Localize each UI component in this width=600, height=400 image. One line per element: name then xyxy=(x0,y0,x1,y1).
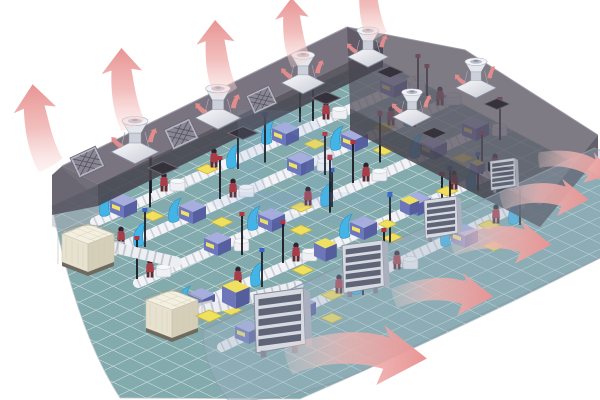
watermark-text-band xyxy=(210,192,395,207)
watermark-text-band xyxy=(245,214,365,223)
ventilation-cutaway-illustration: D xyxy=(0,0,600,400)
